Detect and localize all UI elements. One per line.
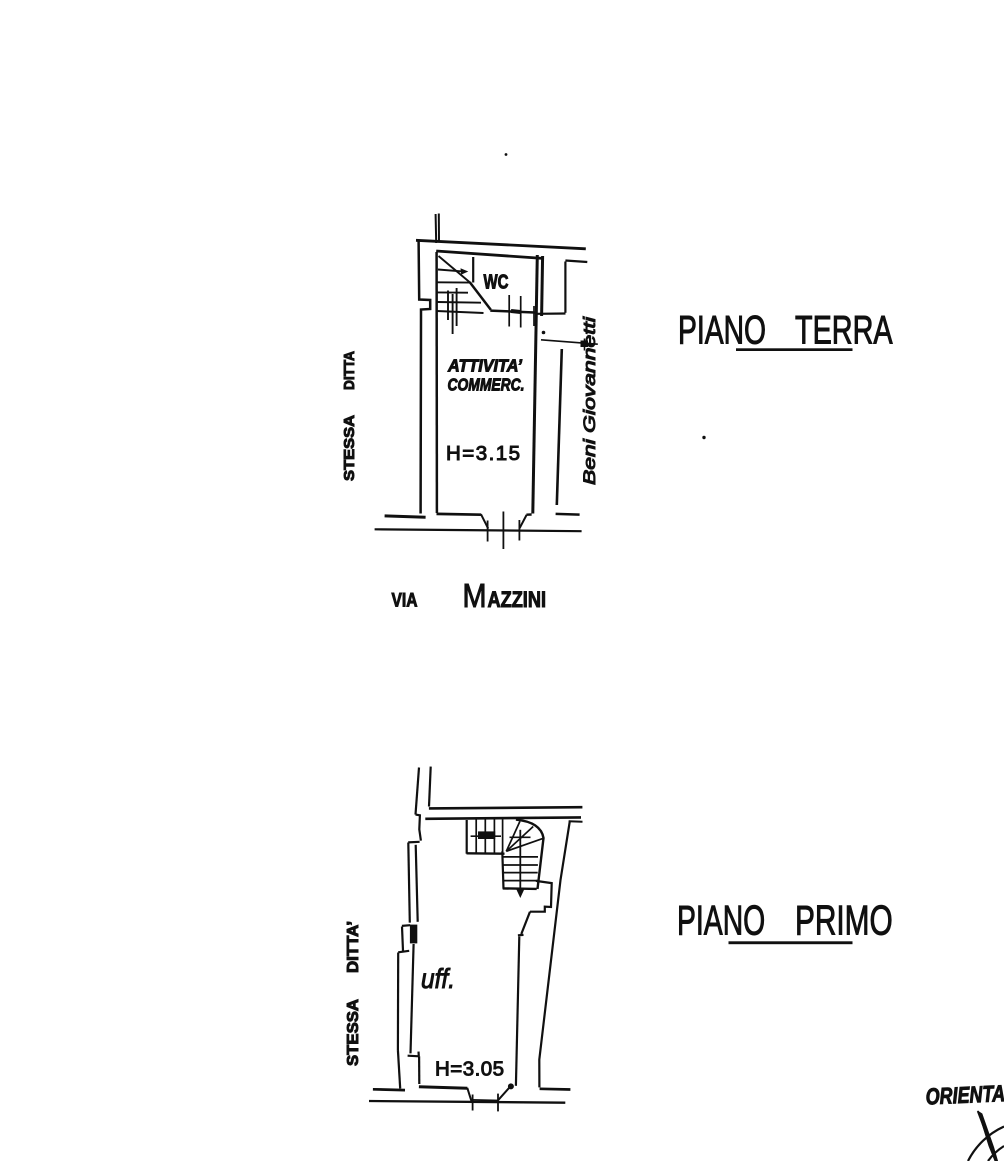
svg-text:H=3.15: H=3.15 <box>446 442 520 465</box>
svg-text:STESSA: STESSA <box>345 999 362 1066</box>
svg-text:VIA: VIA <box>392 591 418 612</box>
svg-text:TERRA: TERRA <box>795 308 893 353</box>
svg-text:Beni Giovannetti: Beni Giovannetti <box>581 315 599 485</box>
svg-text:ORIENTAM: ORIENTAM <box>925 1080 1004 1110</box>
svg-text:PIANO: PIANO <box>677 897 765 944</box>
svg-text:DITTA: DITTA <box>341 351 358 390</box>
svg-text:COMMERC.: COMMERC. <box>448 375 525 395</box>
svg-text:DITTA’: DITTA’ <box>345 921 362 973</box>
svg-text:AZZINI: AZZINI <box>488 587 547 612</box>
svg-text:M: M <box>463 577 487 614</box>
svg-text:WC: WC <box>484 272 509 294</box>
svg-text:STESSA: STESSA <box>341 415 358 481</box>
svg-text:uff.: uff. <box>421 963 455 994</box>
svg-text:ATTIVITA’: ATTIVITA’ <box>447 356 523 376</box>
svg-text:PRIMO: PRIMO <box>795 896 893 943</box>
svg-text:PIANO: PIANO <box>678 309 766 353</box>
svg-text:H=3.05: H=3.05 <box>435 1058 504 1081</box>
